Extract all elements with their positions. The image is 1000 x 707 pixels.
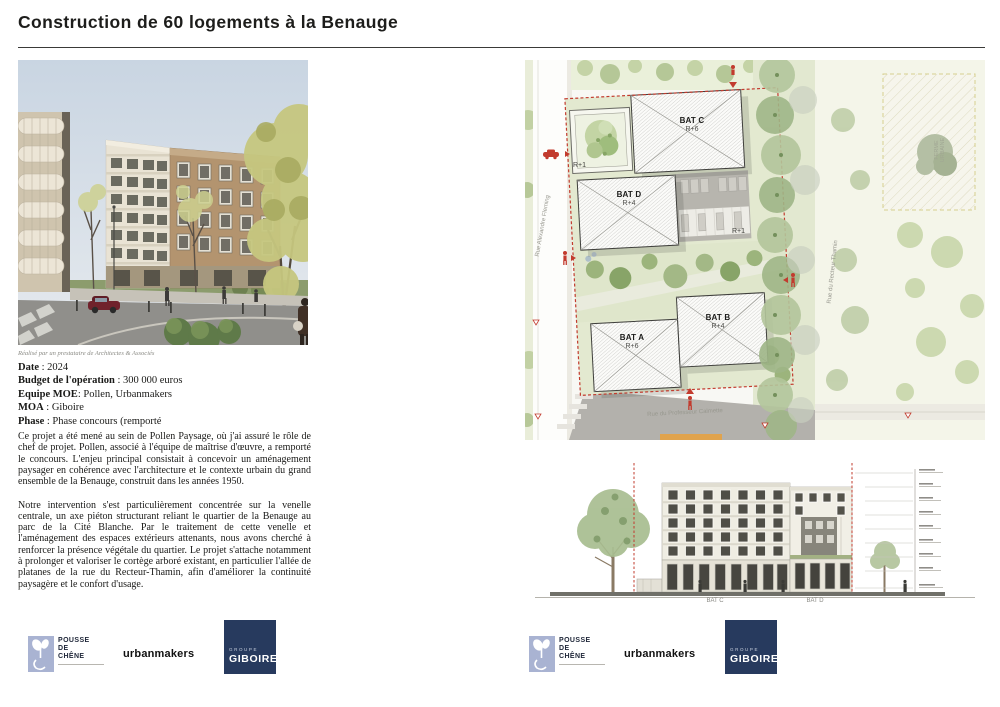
- giboire-name-label: GIBOIRE: [229, 653, 278, 665]
- pousse-line-1: POUSSE: [559, 637, 605, 645]
- project-paragraph-2: Notre intervention s'est particulièremen…: [18, 500, 311, 590]
- portfolio-page: Construction de 60 logements à la Benaug…: [0, 0, 1000, 707]
- project-text: Date : 2024 Budget de l'opération : 300 …: [18, 361, 311, 590]
- logo-urbanmakers: urbanmakers: [123, 648, 194, 660]
- pousse-tagline-rule: [559, 664, 605, 665]
- pousse-line-1: POUSSE: [58, 637, 104, 645]
- site-plan: BAT CR+6 BAT DR+4 BAT AR+6 BAT BR+4 R+1 …: [525, 60, 985, 440]
- giboire-group-label: GROUPE: [229, 647, 258, 652]
- title-underline: [18, 47, 985, 48]
- photo-caption: Réalisé par un prestataire de Architecte…: [18, 350, 308, 357]
- logo-giboire: GROUPE GIBOIRE: [725, 620, 777, 674]
- pousse-tagline-rule: [58, 664, 104, 665]
- logo-urbanmakers: urbanmakers: [624, 648, 695, 660]
- pousse-line-3: CHÊNE: [559, 653, 605, 661]
- detail-line-moe: Equipe MOE: Pollen, Urbanmakers: [18, 388, 311, 401]
- elevation-illustration: [525, 455, 985, 615]
- logo-row-right: POUSSE DE CHÊNE urbanmakers GROUPE GIBOI…: [529, 620, 789, 678]
- logo-row-left: POUSSE DE CHÊNE urbanmakers GROUPE GIBOI…: [28, 620, 288, 678]
- page-title: Construction de 60 logements à la Benaug…: [18, 12, 398, 33]
- logo-pousse-de-chene: POUSSE DE CHÊNE: [28, 636, 104, 672]
- detail-line-date: Date : 2024: [18, 361, 311, 374]
- logo-giboire: GROUPE GIBOIRE: [224, 620, 276, 674]
- project-details: Date : 2024 Budget de l'opération : 300 …: [18, 361, 311, 428]
- elevation-drawing: BAT C BAT D: [525, 455, 985, 615]
- site-plan-drawing: [525, 60, 985, 440]
- photo-render-illustration: [18, 60, 308, 345]
- ferme-urbaine-zone: [883, 74, 975, 210]
- pousse-line-3: CHÊNE: [58, 653, 104, 661]
- elevation-level-annotations: [855, 469, 943, 592]
- detail-line-phase: Phase : Phase concours (remporté: [18, 415, 311, 428]
- pousse-line-2: DE: [559, 645, 605, 653]
- project-photo: [18, 60, 308, 345]
- pousse-line-2: DE: [58, 645, 104, 653]
- project-paragraph-1: Ce projet a été mené au sein de Pollen P…: [18, 431, 311, 487]
- logo-pousse-de-chene: POUSSE DE CHÊNE: [529, 636, 605, 672]
- detail-line-budget: Budget de l'opération : 300 000 euros: [18, 374, 311, 387]
- giboire-group-label: GROUPE: [730, 647, 759, 652]
- pousse-de-chene-icon: [529, 636, 555, 672]
- giboire-name-label: GIBOIRE: [730, 653, 779, 665]
- pousse-de-chene-icon: [28, 636, 54, 672]
- detail-line-moa: MOA : Giboire: [18, 401, 311, 414]
